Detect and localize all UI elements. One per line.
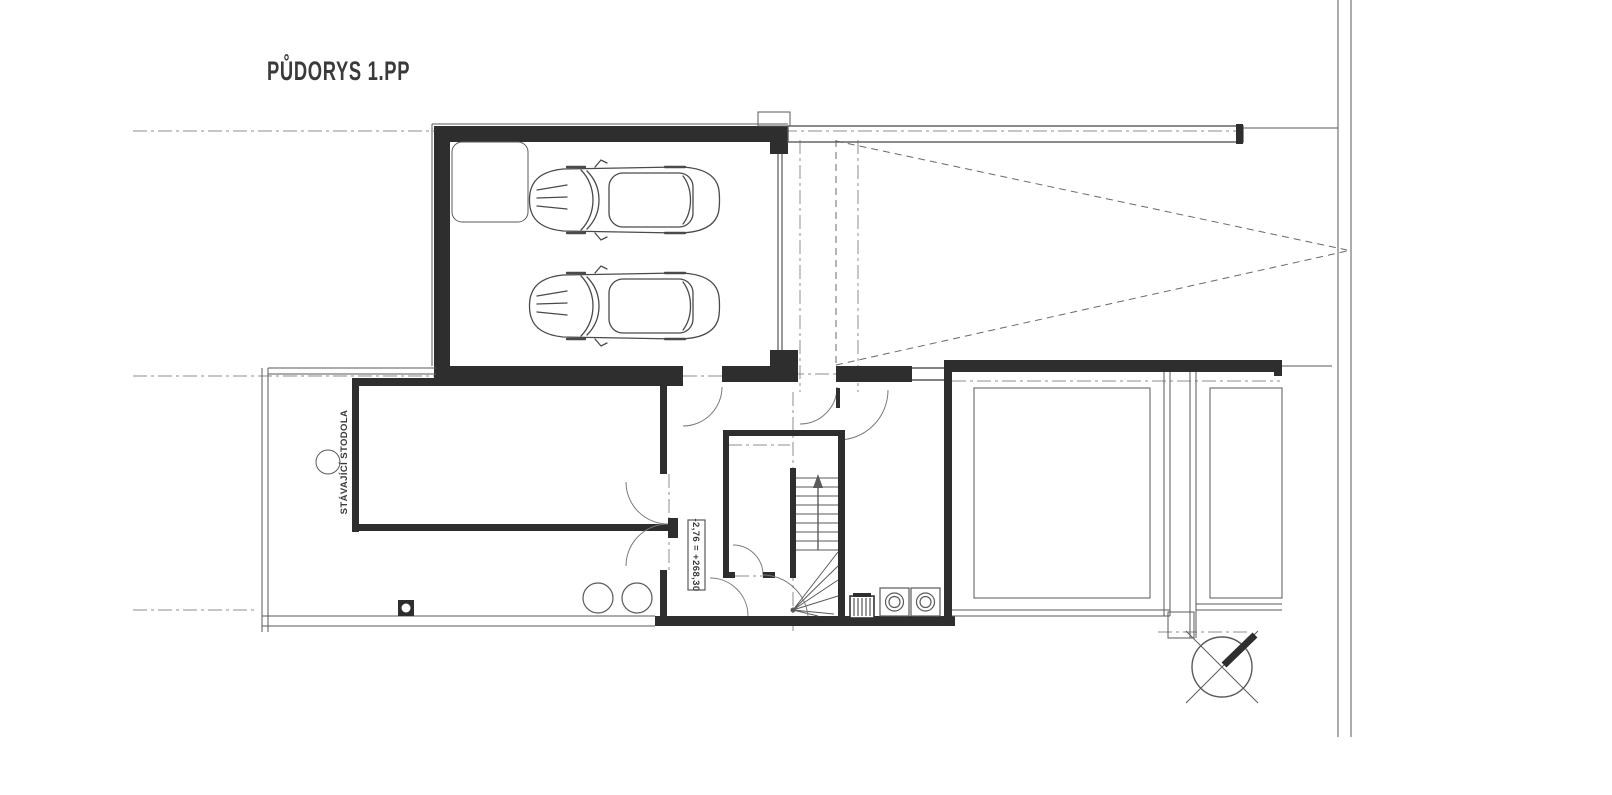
- door-arc: [800, 387, 837, 424]
- light-well-1: [952, 372, 1170, 616]
- south-wall: [655, 616, 955, 626]
- floor-drain-symbol: [398, 600, 414, 616]
- tech-room-east-wall: [944, 360, 952, 626]
- washing-machine-icon: [911, 588, 940, 616]
- fixtures: [398, 583, 940, 618]
- garage-room: [452, 142, 782, 350]
- stair-treads: [763, 478, 838, 616]
- floor-plan-drawing: STÁVAJÍCÍ STODOLA: [0, 0, 1612, 795]
- door-arc: [838, 390, 888, 440]
- door-arc: [683, 387, 722, 426]
- round-column-symbol: [316, 450, 340, 474]
- ramp-retaining-wall: [788, 126, 1243, 142]
- up-arrow-icon: [813, 474, 823, 550]
- garage-west-wall: [434, 126, 450, 366]
- door-arc: [626, 482, 668, 524]
- light-well-2: [1190, 372, 1282, 638]
- round-tank-symbol: [622, 583, 652, 613]
- elevation-marker: -2,76 = +268,30: [688, 518, 705, 591]
- elevation-label: -2,76 = +268,30: [690, 518, 701, 591]
- garage-north-wall: [450, 126, 772, 142]
- exterior-walls: [432, 112, 1282, 626]
- garage-storage-nook: [452, 142, 528, 222]
- middle-wall-east-segment: [952, 360, 1282, 372]
- driveway-ramp-dashed-outline: [836, 140, 1347, 366]
- plan-title: PŮDORYS 1.PP: [267, 52, 410, 86]
- washing-machine-icon: [880, 588, 909, 616]
- north-arrow-icon: [1186, 631, 1258, 703]
- staircase: [723, 430, 845, 618]
- barn-label: STÁVAJÍCÍ STODOLA: [339, 410, 350, 515]
- door-arc: [710, 578, 748, 616]
- round-tank-symbol: [583, 583, 613, 613]
- car-top-view-icon: [530, 160, 720, 240]
- floor-plan-page: STÁVAJÍCÍ STODOLA: [0, 0, 1612, 795]
- light-wells: [952, 372, 1282, 638]
- inner-room-walls: [352, 378, 683, 538]
- garage-door: [778, 154, 782, 350]
- stair-spine-wall: [790, 468, 796, 578]
- axis-grid-lines: [133, 131, 1280, 632]
- car-top-view-icon: [530, 266, 720, 346]
- door-arc: [733, 545, 763, 575]
- boiler-icon: [850, 593, 874, 618]
